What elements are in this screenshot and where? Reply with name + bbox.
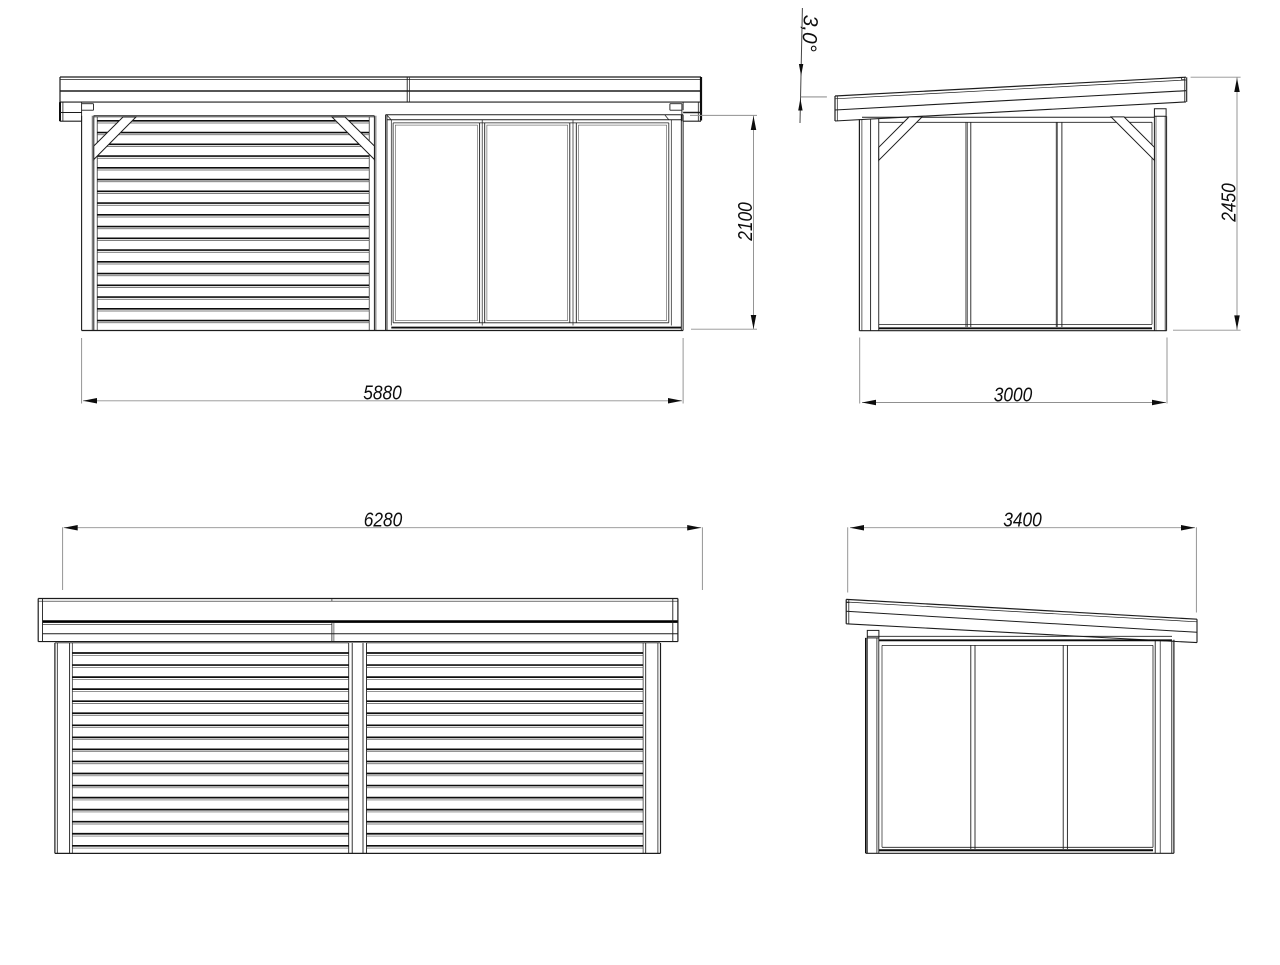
- svg-text:3000: 3000: [994, 383, 1033, 406]
- svg-text:3,0°: 3,0°: [797, 14, 822, 52]
- svg-text:5880: 5880: [363, 382, 402, 405]
- svg-text:6280: 6280: [364, 509, 403, 532]
- svg-text:2100: 2100: [734, 202, 757, 242]
- svg-text:3400: 3400: [1003, 509, 1042, 532]
- svg-text:2450: 2450: [1218, 183, 1241, 223]
